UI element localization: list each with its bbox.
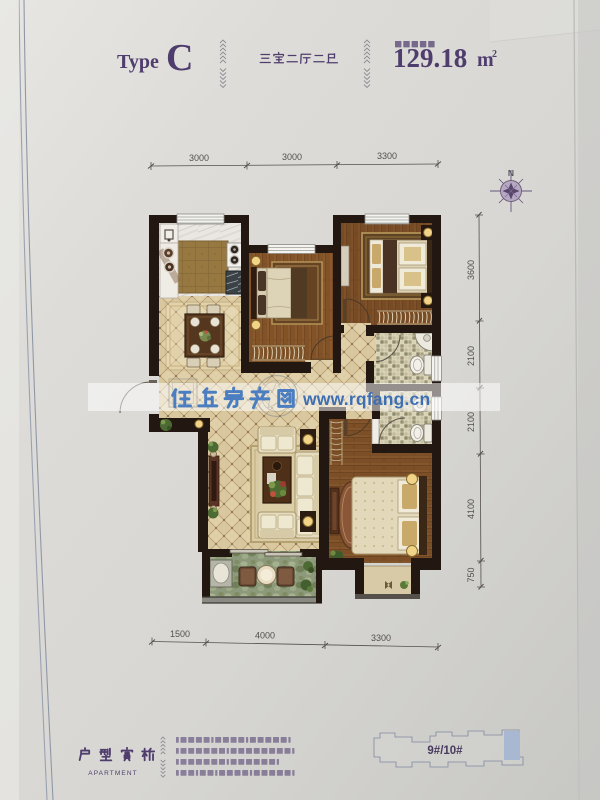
svg-text:3300: 3300 — [377, 151, 397, 161]
svg-text:129.18: 129.18 — [393, 43, 467, 73]
svg-text:3300: 3300 — [371, 633, 391, 643]
svg-text:2: 2 — [492, 49, 497, 60]
svg-text:APARTMENT: APARTMENT — [88, 770, 137, 777]
svg-text:4100: 4100 — [466, 499, 476, 519]
svg-text:3000: 3000 — [189, 153, 209, 163]
svg-text:750: 750 — [466, 567, 476, 582]
svg-text:2100: 2100 — [466, 412, 476, 432]
svg-text:C: C — [166, 37, 193, 79]
svg-text:Type: Type — [117, 51, 159, 73]
svg-text:3600: 3600 — [466, 260, 476, 280]
svg-text:1500: 1500 — [170, 629, 190, 639]
svg-text:9#/10#: 9#/10# — [427, 745, 463, 757]
svg-text:2100: 2100 — [466, 346, 476, 366]
svg-text:www.rqfang.cn: www.rqfang.cn — [302, 389, 430, 409]
svg-text:4000: 4000 — [255, 631, 275, 641]
svg-text:3000: 3000 — [282, 152, 302, 162]
